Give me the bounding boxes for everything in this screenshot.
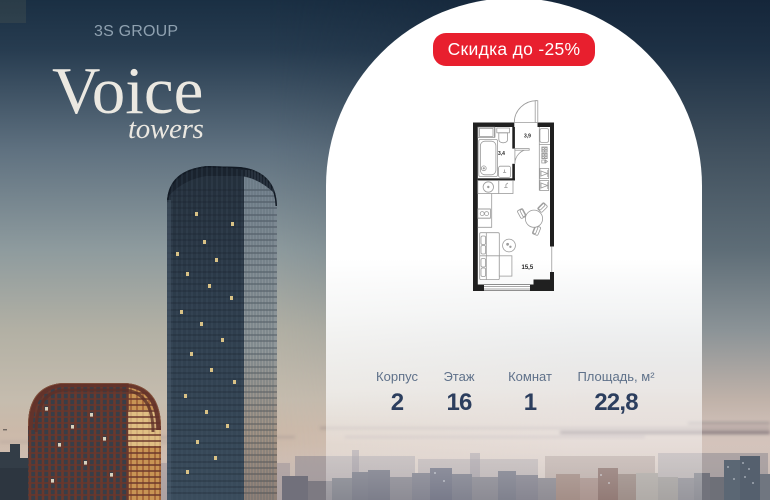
svg-text:3,4: 3,4 [498, 151, 505, 157]
svg-text:3,9: 3,9 [524, 134, 531, 140]
svg-text:15,5: 15,5 [522, 265, 534, 271]
